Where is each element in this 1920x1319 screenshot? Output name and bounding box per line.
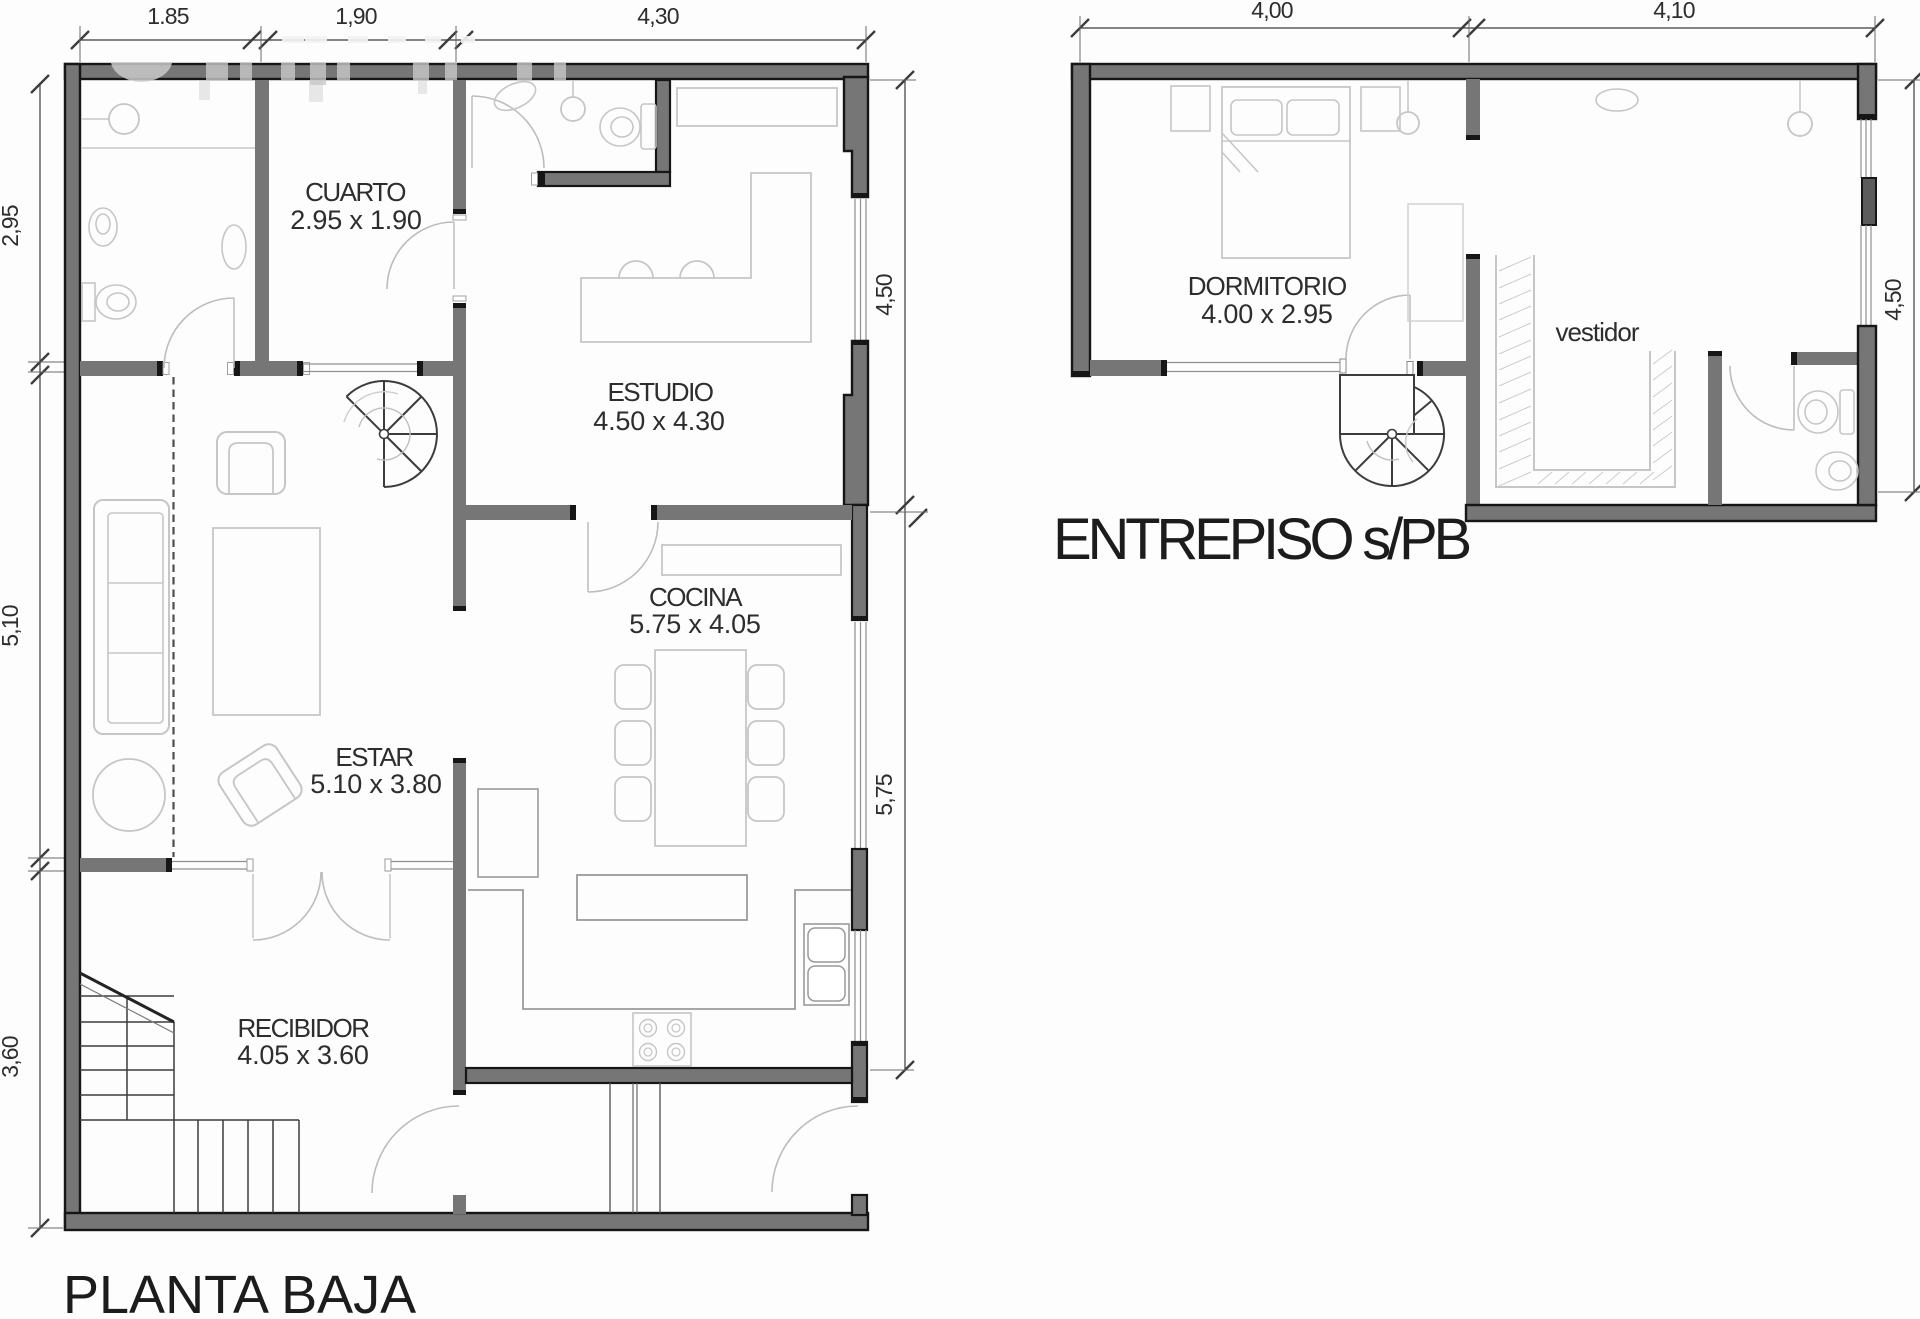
svg-text:4.50 x 4.30: 4.50 x 4.30 — [593, 406, 724, 436]
svg-text:4,00: 4,00 — [1251, 0, 1293, 23]
svg-text:RECIBIDOR: RECIBIDOR — [238, 1013, 370, 1043]
svg-text:2,95: 2,95 — [0, 205, 23, 247]
svg-text:4,50: 4,50 — [1880, 279, 1906, 321]
svg-text:1,90: 1,90 — [335, 3, 377, 29]
svg-text:5.75 x 4.05: 5.75 x 4.05 — [629, 609, 760, 639]
svg-text:COCINA: COCINA — [649, 582, 743, 612]
svg-text:DORMITORIO: DORMITORIO — [1188, 271, 1347, 301]
svg-text:4.05 x 3.60: 4.05 x 3.60 — [237, 1040, 368, 1070]
svg-text:2.95 x 1.90: 2.95 x 1.90 — [290, 205, 421, 235]
svg-text:PLANTA BAJA: PLANTA BAJA — [63, 1265, 416, 1319]
svg-text:4,30: 4,30 — [637, 3, 679, 29]
svg-text:vestidor: vestidor — [1555, 317, 1639, 347]
svg-text:5.10 x 3.80: 5.10 x 3.80 — [310, 769, 441, 799]
svg-text:4.00 x 2.95: 4.00 x 2.95 — [1201, 299, 1332, 329]
svg-text:4,50: 4,50 — [871, 274, 897, 316]
svg-text:1.85: 1.85 — [147, 3, 189, 29]
svg-text:3,60: 3,60 — [0, 1036, 23, 1078]
svg-text:5,75: 5,75 — [871, 774, 897, 816]
svg-text:4,10: 4,10 — [1653, 0, 1695, 23]
svg-text:ENTREPISO s/PB: ENTREPISO s/PB — [1053, 507, 1469, 572]
svg-text:ESTAR: ESTAR — [335, 742, 413, 772]
svg-text:CUARTO: CUARTO — [305, 177, 405, 207]
svg-text:ESTUDIO: ESTUDIO — [607, 377, 712, 407]
svg-text:5,10: 5,10 — [0, 605, 23, 647]
